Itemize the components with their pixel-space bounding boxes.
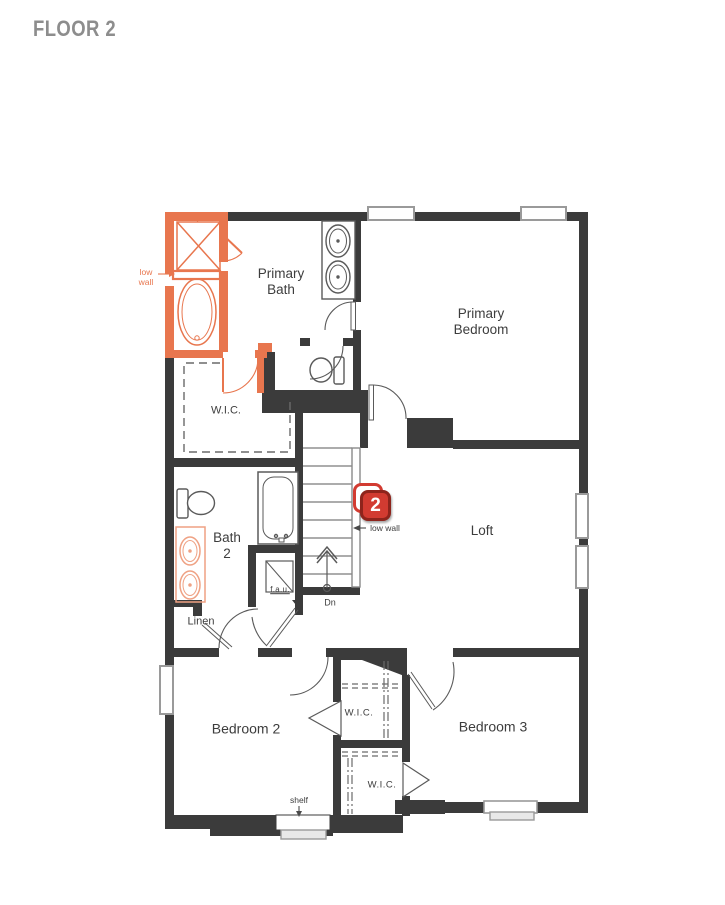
- bath2-door: [267, 608, 298, 647]
- bath2-vanity: [176, 527, 205, 602]
- room-label-bedroom-3: Bedroom 3: [459, 719, 527, 736]
- stairs: [303, 448, 360, 592]
- linen-door: [219, 609, 258, 648]
- window-icon: [281, 830, 326, 839]
- bathtub-icon: [178, 279, 216, 345]
- primary-bath-door: [325, 302, 353, 330]
- floor-plan-drawing: [0, 0, 725, 905]
- annotation-stairs-down: Dn: [324, 598, 336, 609]
- annotation-low-wall-bath: low wall: [132, 268, 160, 288]
- floor-marker-number: 2: [360, 490, 391, 521]
- floor-plan-page: FLOOR 2: [0, 0, 725, 905]
- room-label-bedroom-2: Bedroom 2: [212, 721, 280, 738]
- room-label-primary-bath: Primary Bath: [252, 266, 310, 298]
- floor-marker[interactable]: 2: [353, 483, 393, 525]
- orange-walls: [165, 212, 272, 393]
- window-icon: [576, 494, 588, 538]
- bedroom3-door: [408, 672, 435, 709]
- window-icon: [160, 666, 173, 714]
- room-label-wic-bedroom3: W.I.C.: [368, 779, 397, 790]
- room-label-bath-2: Bath 2: [209, 530, 245, 562]
- wic3-door-wedge: [403, 763, 429, 797]
- window-icon: [368, 207, 414, 220]
- primary-bath-fixtures: [177, 217, 258, 393]
- room-label-primary-wic: W.I.C.: [211, 404, 241, 417]
- window-icon: [484, 801, 537, 813]
- annotation-fau: f.a.u.: [270, 585, 290, 595]
- window-icon: [576, 546, 588, 588]
- toilet-icon: [177, 489, 188, 518]
- room-label-loft: Loft: [471, 523, 494, 539]
- room-label-wic-bedroom2: W.I.C.: [345, 707, 374, 718]
- low-wall-divider: [173, 271, 220, 279]
- annotation-shelf: shelf: [290, 795, 308, 805]
- floor-marker-number-text: 2: [370, 495, 381, 517]
- window-icon: [521, 207, 566, 220]
- wic2-door-wedge: [309, 701, 341, 736]
- primary-bedroom-door: [374, 385, 407, 419]
- room-label-primary-bedroom: Primary Bedroom: [448, 306, 514, 338]
- shelf-niche: [276, 815, 330, 830]
- bedroom2-door: [290, 657, 328, 695]
- room-label-linen: Linen: [188, 615, 215, 628]
